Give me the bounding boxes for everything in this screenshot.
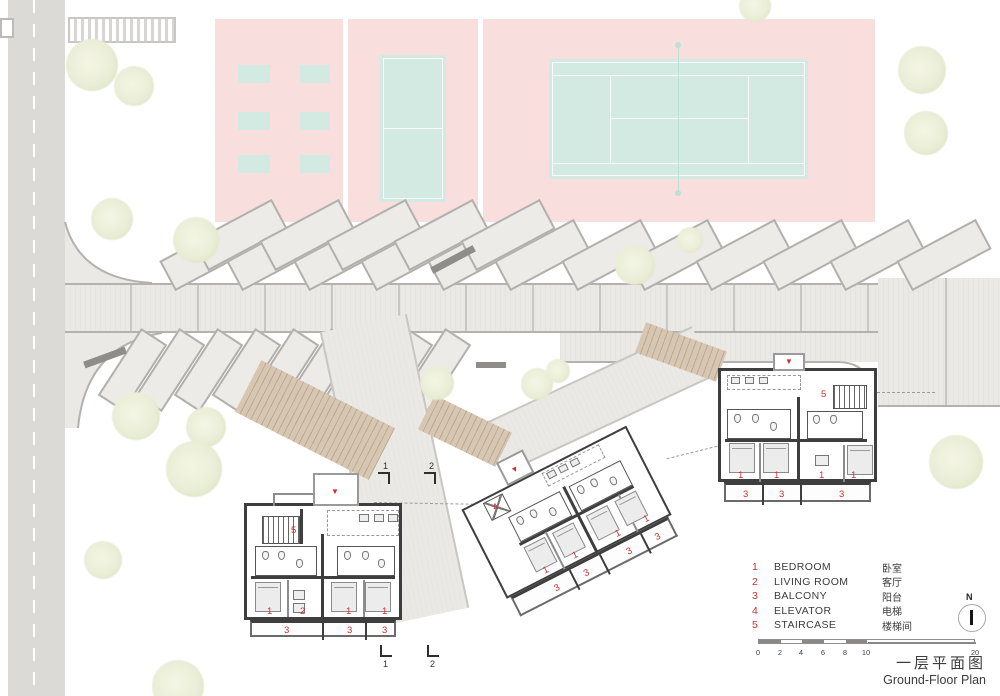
north-label: N [966,592,973,602]
bed [729,443,755,473]
title-cn: 一层平面图 [883,652,986,673]
appliance [759,377,768,384]
tree [166,441,222,497]
bathroom [727,409,791,439]
section-marker-number: 1 [383,461,388,471]
room-number: 3 [743,490,748,500]
appliance [374,514,384,522]
living-table [293,590,305,600]
room-number: 1 [267,607,272,617]
legend-row: 1 BEDROOM 卧室 [752,560,987,575]
scale-label: 2 [778,648,782,657]
building-left: ▼ 5 1 2 1 1 [244,503,402,620]
room-number: 3 [284,626,289,636]
balcony-strip-right: 3 3 3 [724,482,871,502]
legend-row: 5 STAIRCASE 楼梯间 [752,618,987,633]
tree [677,227,703,253]
legend-label-cn: 阳台 [882,589,902,604]
section-marker [380,645,392,657]
staircase [833,385,867,409]
room-number: 3 [625,546,634,557]
scale-bar [758,639,975,644]
section-marker-number: 2 [430,659,435,669]
bathroom [255,546,317,576]
tree [420,366,454,400]
legend-label-en: LIVING ROOM [774,576,882,588]
tree [904,111,948,155]
drawing-title: 一层平面图 Ground-Floor Plan [883,652,986,687]
legend-number: 5 [752,619,774,631]
bathroom [807,411,863,439]
legend-row: 4 ELEVATOR 电梯 [752,604,987,619]
legend: 1 BEDROOM 卧室 2 LIVING ROOM 客厅 3 BALCONY … [752,560,987,633]
legend-label-cn: 楼梯间 [882,618,912,633]
tree [91,198,133,240]
unit-divider-wall [321,534,324,617]
legend-label-cn: 客厅 [882,574,902,589]
tree [173,217,219,263]
room-number: 3 [839,490,844,500]
legend-label-cn: 电梯 [882,603,902,618]
balcony-strip-left: 3 3 3 [250,620,396,637]
guide-dashed-line [877,392,935,393]
scale-label: 0 [756,648,760,657]
appliance [359,514,369,522]
room-number: 3 [382,626,387,636]
entry-porch [273,493,313,495]
legend-number: 1 [752,561,774,573]
legend-label-en: STAIRCASE [774,619,882,631]
room-number: 2 [300,607,305,617]
room-number: 3 [553,583,562,594]
legend-number: 2 [752,576,774,588]
legend-row: 3 BALCONY 阳台 [752,589,987,604]
bed [331,582,357,612]
scale-label: 10 [862,648,870,657]
scale-label: 4 [799,648,803,657]
legend-label-en: BEDROOM [774,561,882,573]
section-marker-number: 1 [383,659,388,669]
entry-arrow-icon: ▼ [331,488,339,496]
room-number: 3 [653,532,662,543]
sofa [815,455,829,466]
room-number: 1 [738,471,743,481]
section-marker [378,472,390,484]
room-number: 1 [382,607,387,617]
section-marker [427,645,439,657]
room-number: 1 [774,471,779,481]
room-number: 3 [779,490,784,500]
legend-label-en: BALCONY [774,590,882,602]
room-number: 5 [821,390,826,400]
legend-label-cn: 卧室 [882,560,902,575]
appliance [745,377,754,384]
room-number: 3 [582,568,591,579]
appliance [731,377,740,384]
legend-row: 2 LIVING ROOM 客厅 [752,575,987,590]
scale-label: 6 [821,648,825,657]
tree [929,435,983,489]
room-number: 5 [291,526,296,536]
section-marker-number: 2 [429,461,434,471]
room-number: 1 [346,607,351,617]
bench [476,362,506,368]
bed [763,443,789,473]
ground-floor-plan: ▼ 5 1 2 1 1 3 3 3 ▼ [0,0,1000,696]
tree [84,541,122,579]
tree [114,66,154,106]
room-number: 3 [347,626,352,636]
legend-number: 3 [752,590,774,602]
legend-number: 4 [752,605,774,617]
appliance [388,514,398,522]
building-right: ▼ 5 1 1 1 1 [718,368,877,482]
bathroom [337,546,395,576]
section-marker [424,472,436,484]
room-number: 1 [819,471,824,481]
tree [112,392,160,440]
legend-label-en: ELEVATOR [774,605,882,617]
title-en: Ground-Floor Plan [883,673,986,687]
scale-label: 8 [843,648,847,657]
tree [546,359,570,383]
tree [898,46,946,94]
tree [615,245,655,285]
room-number: 1 [851,471,856,481]
north-needle [970,610,973,625]
tree [66,39,118,91]
entry-arrow-icon: ▼ [785,358,793,366]
